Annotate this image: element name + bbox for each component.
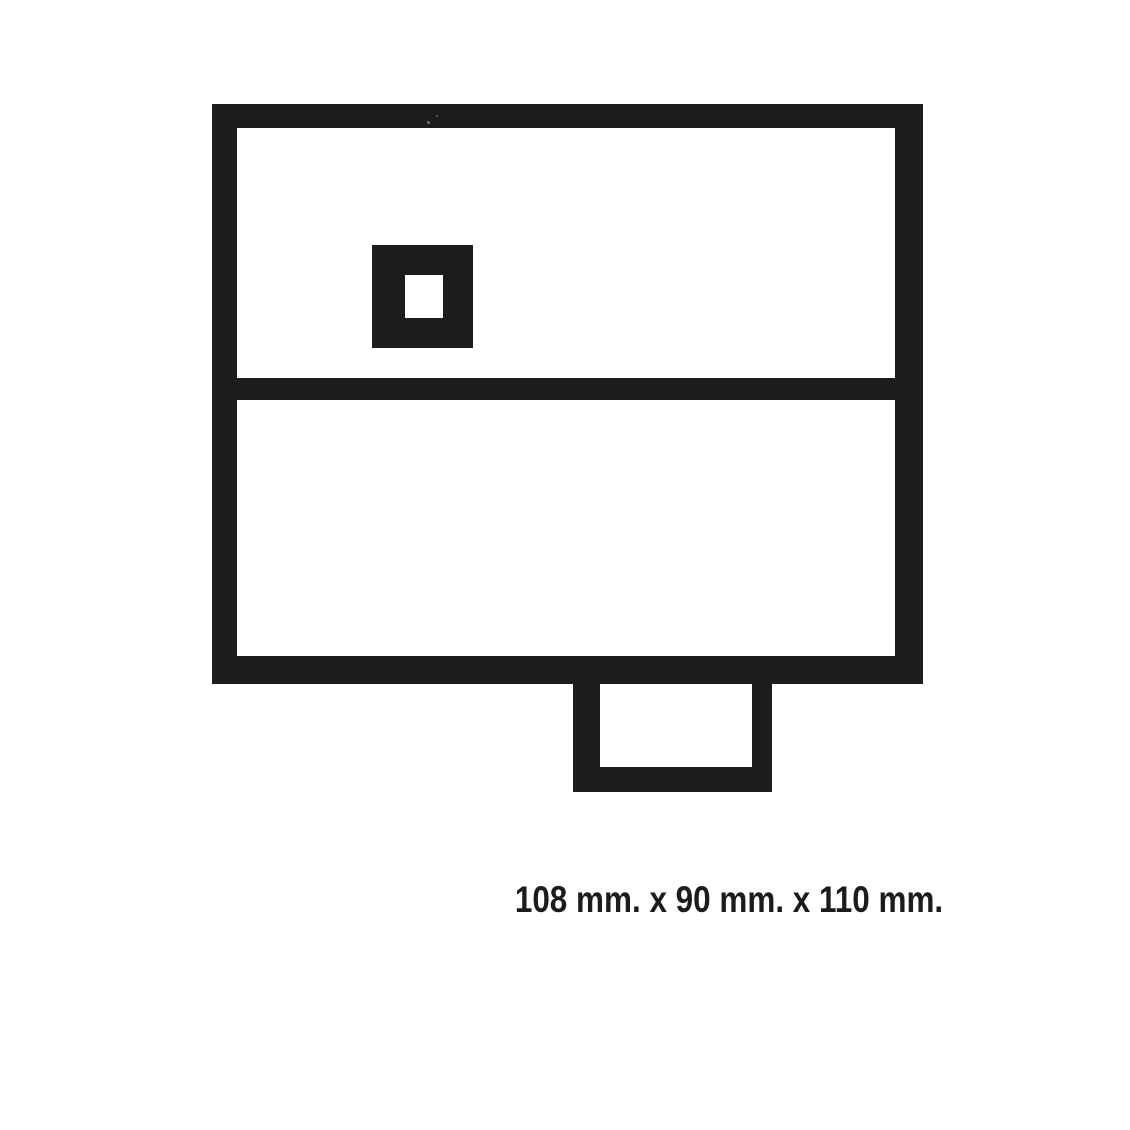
- bottom-tab-hole: [600, 684, 752, 767]
- scan-noise-speck: [436, 115, 438, 117]
- scan-noise-speck: [427, 121, 430, 124]
- diagram-page: 108 mm. x 90 mm. x 110 mm.: [0, 0, 1130, 1130]
- square-port-hole: [405, 275, 443, 318]
- panel-divider: [230, 378, 905, 400]
- dimensions-caption: 108 mm. x 90 mm. x 110 mm.: [515, 880, 943, 920]
